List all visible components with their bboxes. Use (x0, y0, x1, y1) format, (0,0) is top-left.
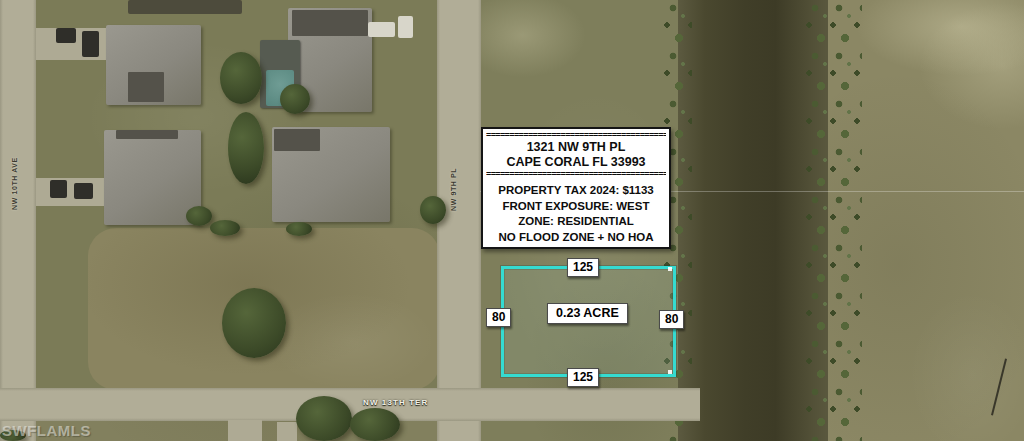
flood-hoa-line: NO FLOOD ZONE + NO HOA (486, 230, 666, 245)
tree (296, 396, 352, 441)
road-middle-vertical (437, 0, 481, 441)
separator-line: ========================================… (486, 131, 666, 140)
tree (420, 196, 446, 224)
tree (210, 220, 240, 236)
parked-white-vehicle (398, 16, 413, 38)
canal-bank-east-vegetation (806, 0, 862, 441)
tree-vacant-lot (222, 288, 286, 358)
parked-white-vehicle (368, 22, 395, 37)
driveway (228, 420, 262, 441)
parked-car (50, 180, 67, 198)
roof-dark-section (292, 10, 368, 36)
survey-marker (668, 370, 672, 374)
parked-car (74, 183, 93, 199)
dimension-label-right: 80 (659, 310, 684, 329)
parked-car (82, 31, 99, 57)
tree (228, 112, 264, 184)
roof-dark-section (128, 72, 164, 102)
property-info-box: ========================================… (481, 127, 671, 249)
separator-line: ========================================… (486, 170, 666, 179)
backyard-structures (128, 0, 242, 14)
roof-dark-section (274, 129, 320, 151)
survey-marker (668, 267, 672, 271)
dimension-label-left: 80 (486, 308, 511, 327)
dimension-label-bottom: 125 (567, 368, 599, 387)
dimension-label-top: 125 (567, 258, 599, 277)
property-tax-line: PROPERTY TAX 2024: $1133 (486, 183, 666, 198)
driveway (36, 178, 106, 206)
area-label: 0.23 ACRE (547, 303, 628, 324)
roof-dark-section (116, 130, 178, 139)
front-exposure-line: FRONT EXPOSURE: WEST (486, 199, 666, 214)
tree (280, 84, 310, 114)
zone-line: ZONE: RESIDENTIAL (486, 214, 666, 229)
tree (286, 222, 312, 236)
address-line: 1321 NW 9TH PL (486, 140, 666, 155)
road-left-vertical (0, 0, 36, 441)
tree (350, 408, 400, 441)
street-label-middle-place: NW 9TH PL (450, 147, 457, 211)
city-line: CAPE CORAL FL 33993 (486, 155, 666, 170)
parked-car (56, 28, 76, 43)
spacer (486, 179, 666, 182)
street-label-left-avenue: NW 10TH AVE (11, 138, 18, 210)
street-label-bottom-terrace: NW 13TH TER (363, 398, 428, 407)
tree (220, 52, 262, 104)
tree (186, 206, 212, 226)
aerial-listing-photo: 125 80 80 125 0.23 ACRE ================… (0, 0, 1024, 441)
mls-watermark: SWFLAMLS (2, 422, 91, 439)
driveway (277, 422, 297, 441)
